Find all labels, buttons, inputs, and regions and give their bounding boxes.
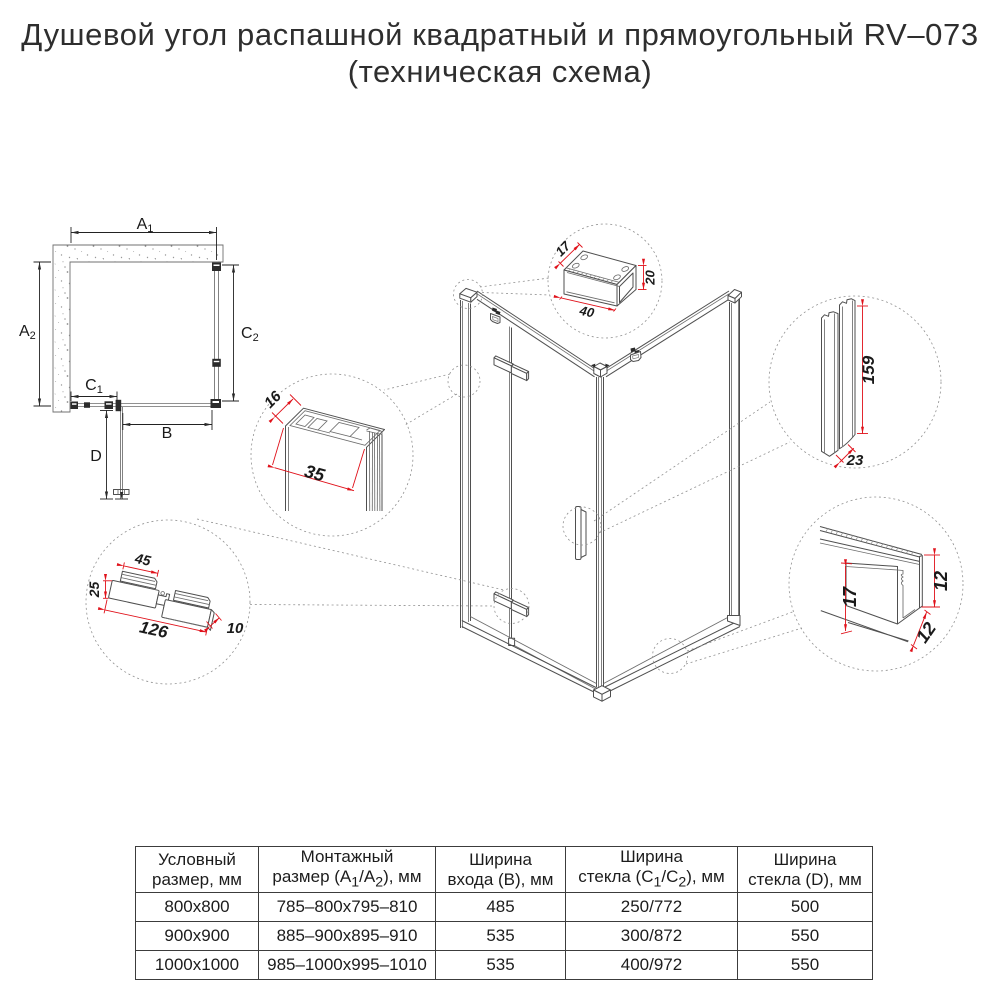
svg-text:16: 16 bbox=[261, 387, 285, 411]
svg-text:17: 17 bbox=[552, 238, 573, 259]
svg-text:10: 10 bbox=[227, 620, 244, 637]
svg-text:159: 159 bbox=[859, 355, 878, 384]
svg-text:17: 17 bbox=[840, 586, 860, 607]
svg-text:25: 25 bbox=[86, 582, 102, 599]
svg-text:C1: C1 bbox=[85, 377, 103, 396]
svg-text:D: D bbox=[90, 448, 102, 465]
svg-text:C2: C2 bbox=[241, 325, 259, 344]
svg-text:12: 12 bbox=[931, 571, 951, 591]
svg-text:B: B bbox=[162, 425, 173, 442]
svg-text:20: 20 bbox=[643, 270, 658, 286]
svg-text:A2: A2 bbox=[19, 323, 36, 342]
svg-text:40: 40 bbox=[577, 303, 596, 321]
svg-text:23: 23 bbox=[846, 452, 864, 469]
svg-text:45: 45 bbox=[133, 550, 153, 569]
svg-text:12: 12 bbox=[912, 619, 940, 647]
svg-text:A1: A1 bbox=[137, 216, 154, 235]
svg-text:126: 126 bbox=[138, 617, 170, 642]
